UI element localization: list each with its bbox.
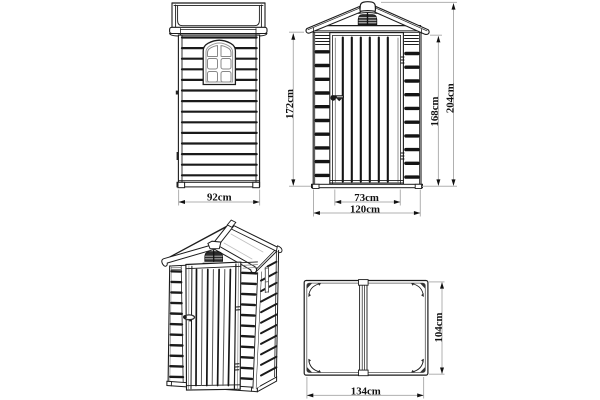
svg-text:134cm: 134cm: [351, 385, 381, 397]
svg-text:73cm: 73cm: [354, 192, 379, 204]
svg-text:204cm: 204cm: [444, 83, 456, 113]
svg-text:168cm: 168cm: [429, 97, 441, 127]
svg-text:172cm: 172cm: [284, 89, 296, 119]
svg-text:120cm: 120cm: [350, 204, 380, 216]
svg-text:104cm: 104cm: [433, 313, 445, 343]
svg-text:92cm: 92cm: [207, 192, 232, 204]
